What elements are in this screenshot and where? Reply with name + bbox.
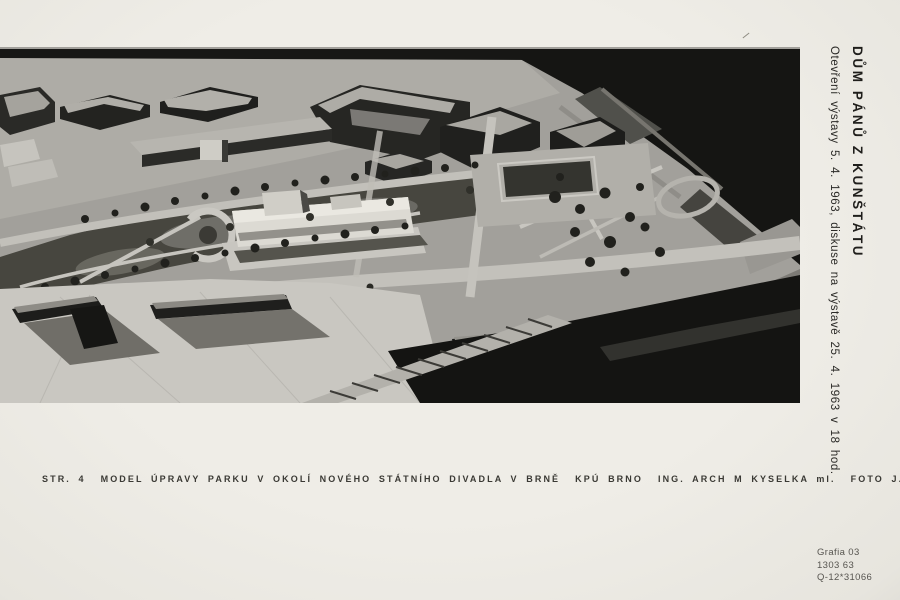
model-photo-art [0,47,800,403]
caption-photographer: FOTO J. KOPAL [851,474,900,484]
model-photo [0,47,800,403]
fly-tower [262,190,303,216]
imprint-line-1: Grafia 03 [817,547,872,560]
imprint-line-3: Q-12*31066 [817,572,872,585]
photo-caption: STR. 4 MODEL ÚPRAVY PARKU V OKOLÍ NOVÉHO… [42,474,900,484]
printer-imprint: Grafia 03 1303 63 Q-12*31066 [817,547,872,585]
spine-subtitle: Otevření výstavy 5. 4. 1963, diskuse na … [828,46,840,475]
caption-page-ref: STR. 4 [42,474,86,484]
imprint-line-2: 1303 63 [817,560,872,573]
pencil-tick-mark [743,33,750,39]
caption-office: KPÚ BRNO [575,474,643,484]
caption-architect: ING. ARCH M KYSELKA ml. [658,474,836,484]
spine-title: DŮM PÁNŮ Z KUNŠTÁTU [850,46,865,258]
caption-title: MODEL ÚPRAVY PARKU V OKOLÍ NOVÉHO STÁTNÍ… [101,474,561,484]
